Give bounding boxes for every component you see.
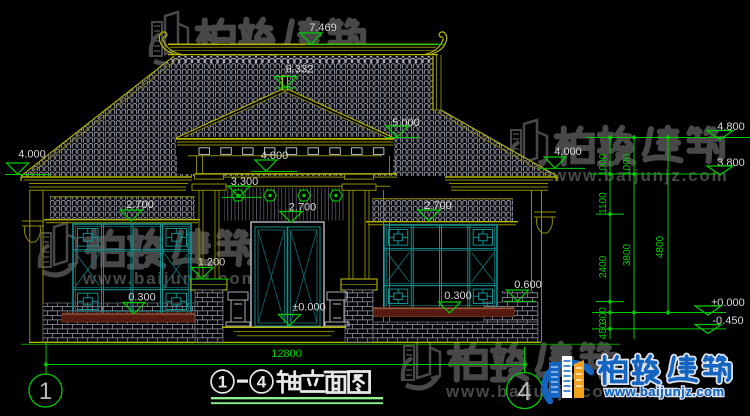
svg-text:±0.000: ±0.000	[711, 297, 745, 309]
svg-text:-0.450: -0.450	[712, 315, 743, 327]
svg-text:0.600: 0.600	[514, 279, 542, 291]
svg-text:450: 450	[598, 322, 609, 339]
svg-text:3800: 3800	[622, 243, 633, 266]
svg-text:12800: 12800	[271, 348, 302, 360]
svg-text:6.332: 6.332	[286, 64, 314, 76]
svg-text:4.000: 4.000	[554, 146, 582, 158]
svg-text:±0.000: ±0.000	[292, 302, 326, 314]
svg-text:2.700: 2.700	[126, 199, 154, 211]
svg-text:1: 1	[39, 378, 52, 405]
svg-text:4: 4	[257, 373, 267, 392]
svg-text:1000: 1000	[622, 153, 633, 176]
svg-text:www.baijunjz.com: www.baijunjz.com	[603, 384, 724, 399]
svg-text:4800: 4800	[655, 235, 666, 258]
svg-text:0.300: 0.300	[128, 292, 156, 304]
svg-text:7.469: 7.469	[309, 22, 337, 34]
svg-text:4: 4	[517, 376, 531, 406]
svg-text:1000: 1000	[598, 153, 609, 176]
svg-text:4.000: 4.000	[18, 149, 46, 161]
svg-text:0.300: 0.300	[444, 290, 472, 302]
svg-text:2400: 2400	[598, 255, 609, 278]
svg-text:1.200: 1.200	[198, 257, 226, 269]
svg-text:300: 300	[598, 307, 609, 324]
svg-text:1100: 1100	[598, 192, 609, 214]
svg-text:1: 1	[218, 373, 227, 392]
